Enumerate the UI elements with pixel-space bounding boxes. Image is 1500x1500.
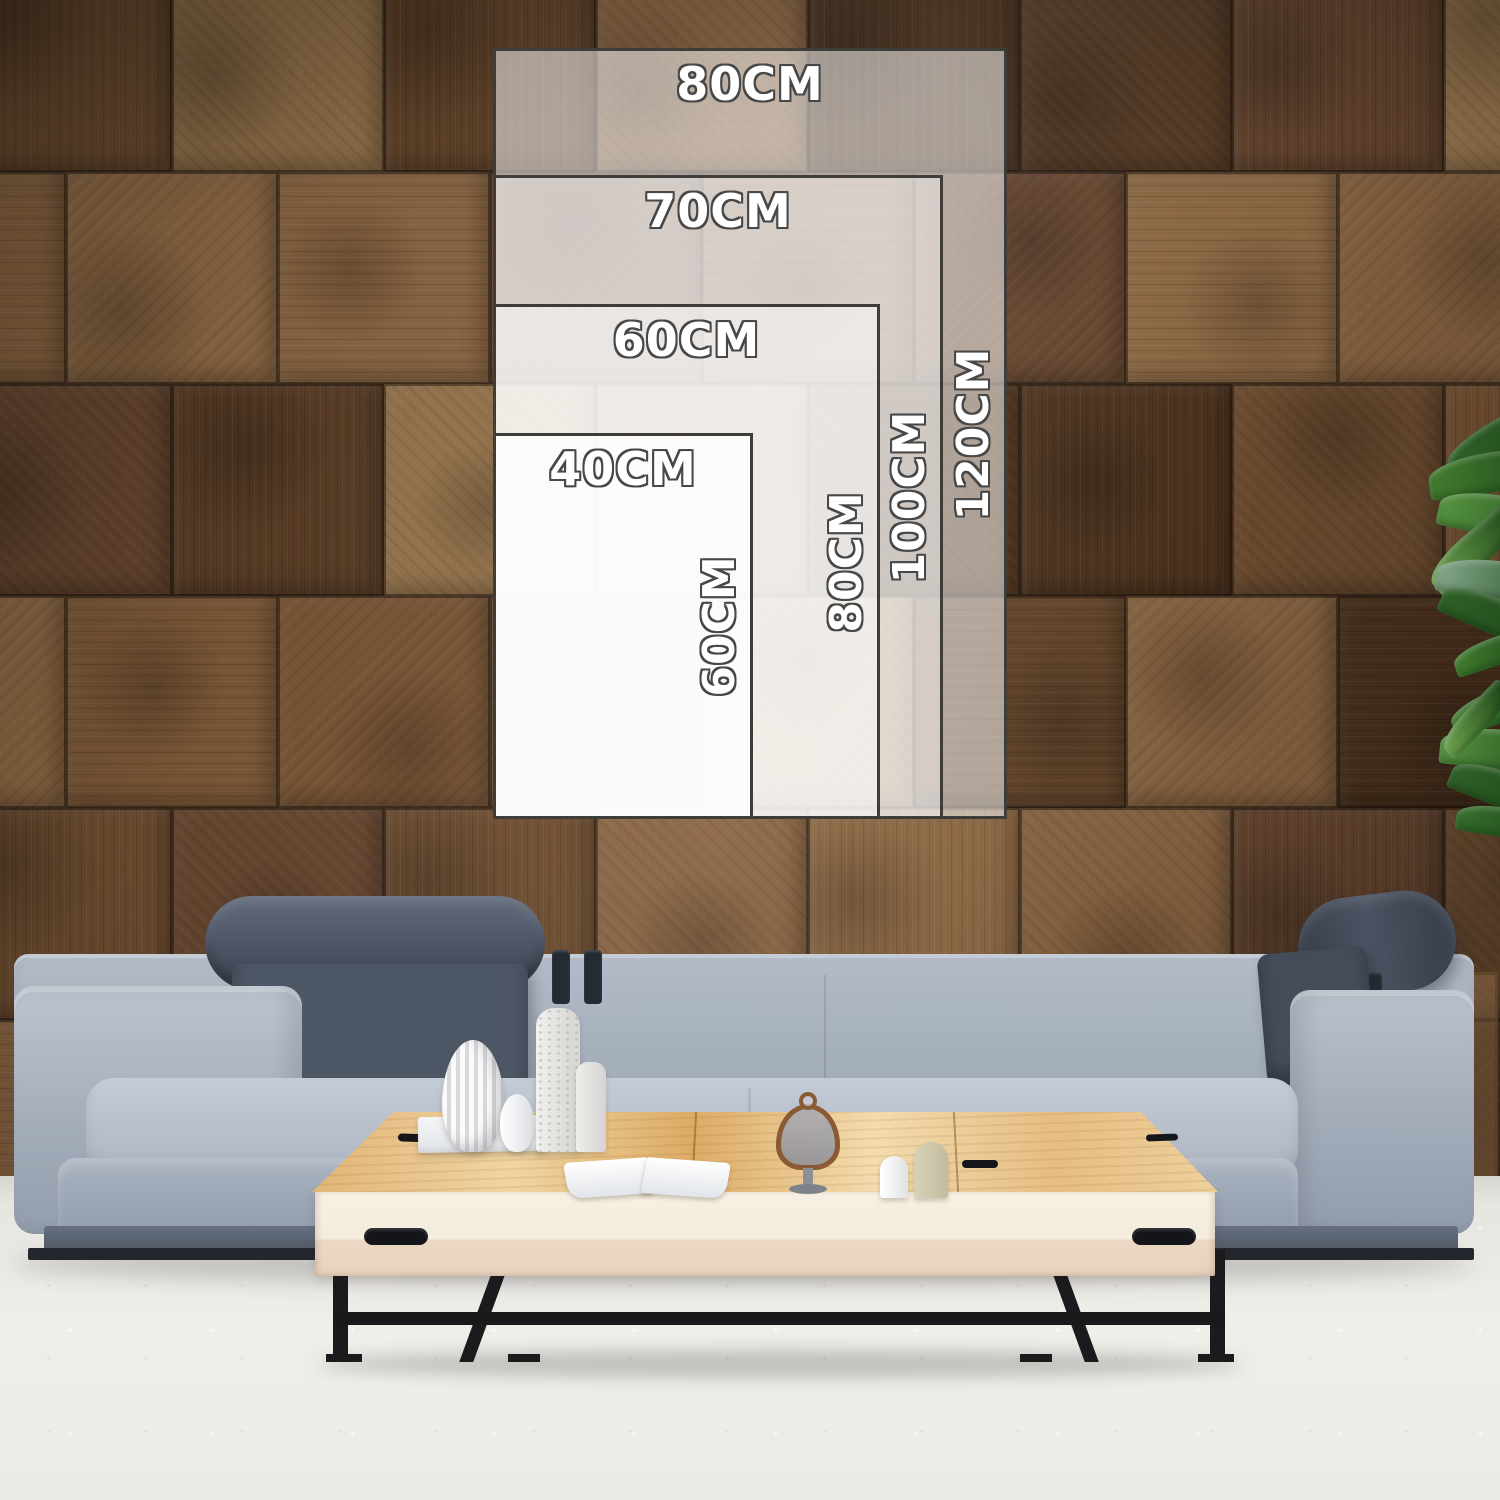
wood-block [808,0,1020,172]
medium-cylinder-vase [576,1062,606,1152]
wood-block [1126,172,1338,384]
wood-block [1444,0,1500,172]
glass-cloche [776,1096,840,1196]
headrest-strap [584,950,602,1004]
wood-block [596,0,808,172]
sofa-armrest-right [1290,990,1474,1234]
cloche-dome [776,1104,840,1170]
small-beige-ornament [914,1142,948,1198]
wood-block [808,384,1020,596]
wood-block [0,0,172,172]
table-foot [326,1354,362,1362]
small-vase [500,1094,534,1152]
book-page-right [641,1157,731,1199]
wood-block [596,384,808,596]
wood-block [0,596,66,808]
small-white-ornament [880,1156,908,1198]
table-foot [508,1354,540,1362]
table-leg-stretcher [335,1312,1225,1325]
wood-block [66,172,278,384]
tabletop-slot [962,1160,998,1168]
tall-cylinder-vase [536,1008,580,1152]
wood-block [1126,596,1338,808]
wood-block [0,384,172,596]
wood-block [384,0,596,172]
open-book [566,1152,728,1202]
mockup-scene: 80CM120CM70CM100CM60CM80CM40CM60CM [0,0,1500,1500]
wood-block [278,172,490,384]
table-foot [1198,1354,1234,1362]
table-foot [1020,1354,1052,1362]
wood-block [172,384,384,596]
table-shadow [318,1350,1242,1378]
wood-block [384,384,596,596]
wood-block [490,596,702,808]
wood-block [0,172,66,384]
tabletop-joint [953,1112,959,1192]
tabletop-slot [1146,1133,1178,1141]
wood-block [66,596,278,808]
wood-block [1232,384,1444,596]
cloche-knob [799,1092,817,1110]
table-handle [1132,1228,1196,1245]
table-handle [364,1228,428,1245]
wood-block [1020,384,1232,596]
table-front-panel [315,1190,1215,1276]
wood-block [278,596,490,808]
cloche-foot [789,1184,827,1194]
wood-block [702,172,914,384]
book-page-left [563,1157,653,1199]
wood-block [914,172,1126,384]
wood-block [702,596,914,808]
headrest-strap [552,950,570,1004]
wood-block [490,172,702,384]
wood-block [1020,0,1232,172]
wood-block [1232,0,1444,172]
wood-block [172,0,384,172]
wood-block [914,596,1126,808]
wood-block [1338,172,1500,384]
